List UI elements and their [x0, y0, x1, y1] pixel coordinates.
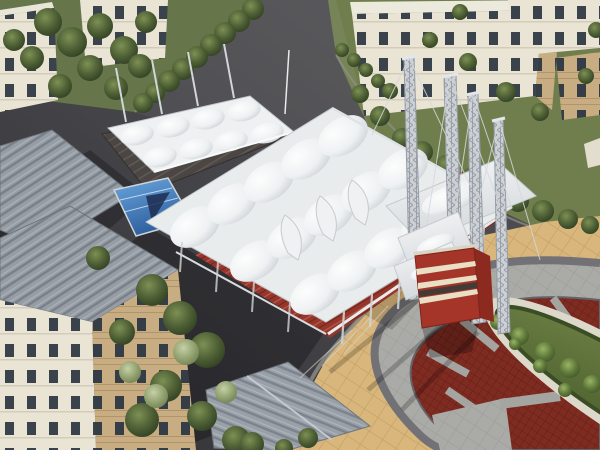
- tree: [558, 209, 578, 229]
- building-facade-brick: [556, 52, 600, 120]
- garden-tree: [560, 358, 580, 378]
- tree: [187, 401, 217, 431]
- tree: [351, 85, 369, 103]
- tree: [128, 54, 152, 78]
- building-facade-cream: [508, 0, 600, 56]
- tree: [133, 93, 153, 113]
- tree: [86, 246, 110, 270]
- tree-flowering: [119, 361, 141, 383]
- tree: [370, 106, 390, 126]
- garden-tree: [558, 383, 572, 397]
- tree: [34, 8, 62, 36]
- tree: [87, 13, 113, 39]
- tree: [163, 301, 197, 335]
- tree: [422, 32, 438, 48]
- garden-tree: [535, 342, 555, 362]
- tree: [57, 27, 87, 57]
- tree: [371, 74, 385, 88]
- tree: [578, 68, 594, 84]
- tree-flowering: [215, 381, 237, 403]
- tree: [109, 319, 135, 345]
- tree: [3, 29, 25, 51]
- tree: [532, 200, 554, 222]
- tree: [135, 11, 157, 33]
- tree: [459, 53, 477, 71]
- tree: [452, 4, 468, 20]
- tree: [20, 46, 44, 70]
- render-viewport: Aerial 3D architectural rendering of a s…: [0, 0, 600, 450]
- garden-tree: [509, 338, 521, 350]
- tree: [496, 82, 516, 102]
- tree: [531, 103, 549, 121]
- tree-flowering: [144, 384, 168, 408]
- tree: [104, 76, 128, 100]
- tree: [347, 53, 361, 67]
- tree: [77, 55, 103, 81]
- tree: [136, 274, 168, 306]
- garden-tree: [533, 359, 547, 373]
- tree-flowering: [173, 339, 199, 365]
- tree: [335, 43, 349, 57]
- tree: [125, 403, 159, 437]
- aerial-architectural-render: Aerial 3D architectural rendering of a s…: [0, 0, 600, 450]
- tree: [581, 216, 599, 234]
- building-facade-cream: [0, 300, 96, 450]
- tree: [48, 74, 72, 98]
- tree: [298, 428, 318, 448]
- tree: [359, 63, 373, 77]
